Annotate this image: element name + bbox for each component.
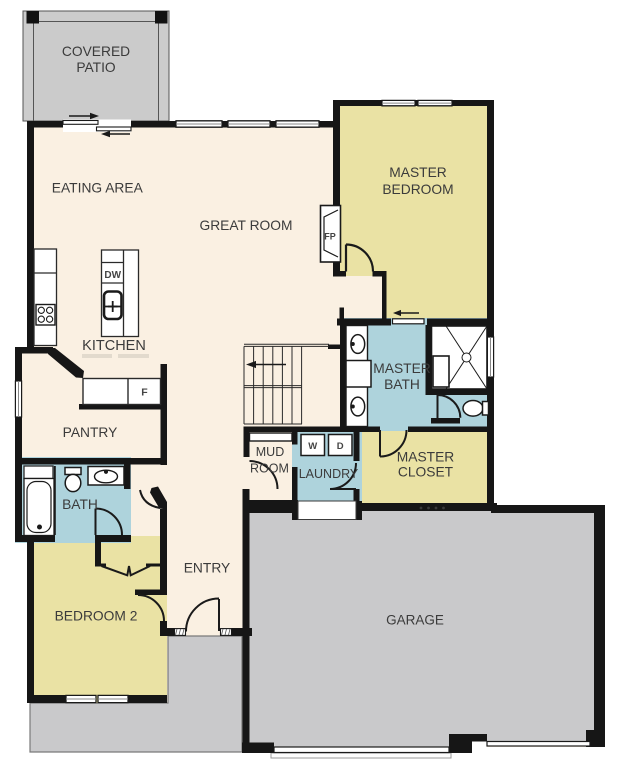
svg-text:PANTRY: PANTRY (63, 425, 118, 440)
svg-text:BATH: BATH (384, 377, 420, 392)
svg-text:CLOSET: CLOSET (398, 465, 454, 480)
svg-text:MASTER: MASTER (373, 361, 431, 376)
svg-text:GREAT ROOM: GREAT ROOM (199, 218, 292, 233)
svg-text:LAUNDRY: LAUNDRY (299, 467, 359, 481)
svg-text:MUD: MUD (256, 445, 284, 459)
svg-text:BEDROOM 2: BEDROOM 2 (55, 609, 138, 624)
svg-text:ENTRY: ENTRY (184, 561, 231, 576)
svg-text:BEDROOM: BEDROOM (382, 182, 453, 197)
svg-text:EATING AREA: EATING AREA (52, 180, 144, 195)
svg-text:BATH: BATH (62, 497, 98, 512)
svg-text:FP: FP (324, 232, 336, 242)
svg-text:MASTER: MASTER (389, 165, 447, 180)
svg-text:KITCHEN: KITCHEN (82, 338, 146, 354)
svg-text:ROOM: ROOM (250, 462, 289, 476)
svg-text:MASTER: MASTER (397, 450, 455, 465)
svg-text:GARAGE: GARAGE (386, 613, 444, 628)
svg-text:F: F (141, 387, 148, 399)
svg-text:D: D (337, 441, 344, 452)
svg-text:PATIO: PATIO (76, 60, 116, 75)
svg-text:DW: DW (104, 270, 121, 281)
svg-text:COVERED: COVERED (62, 44, 130, 59)
svg-text:W: W (308, 441, 317, 452)
